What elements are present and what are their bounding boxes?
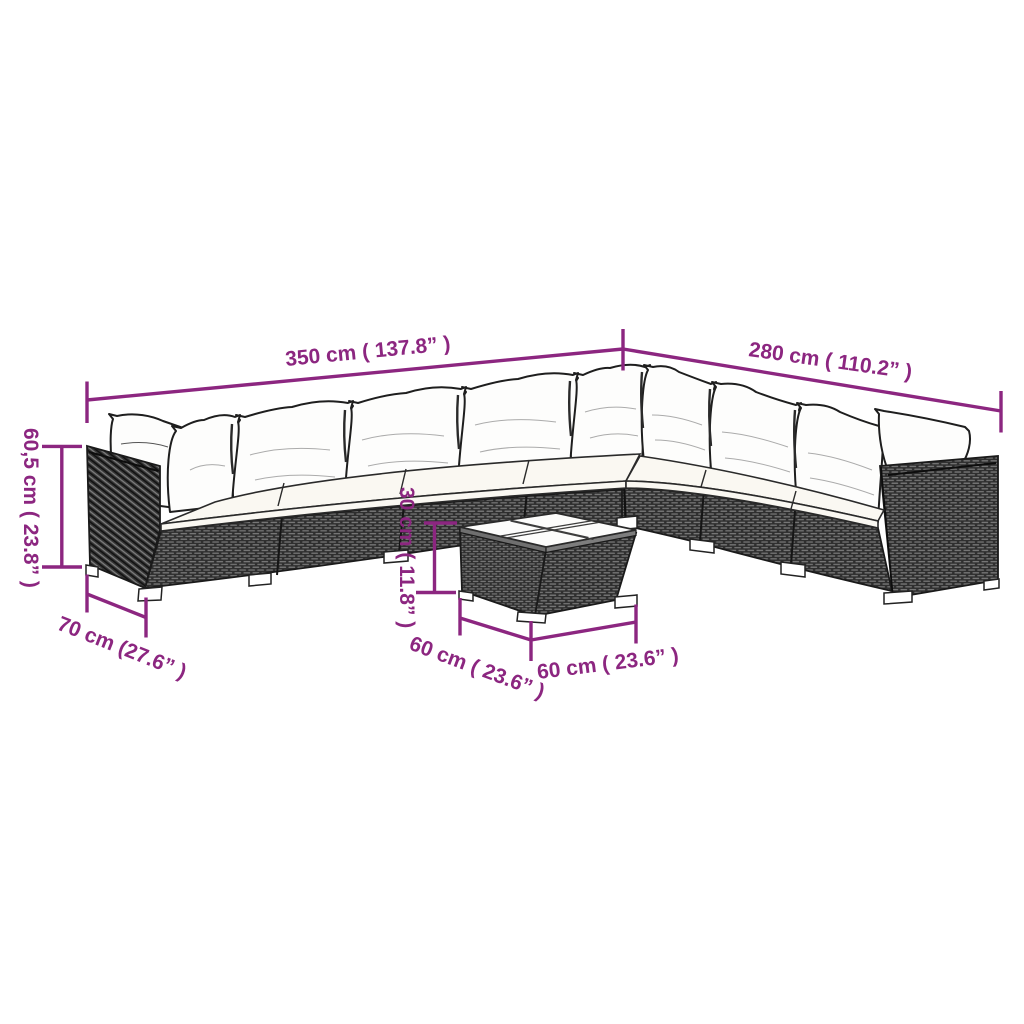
svg-text:30 cm ( 11.8” ): 30 cm ( 11.8” ): [395, 487, 418, 628]
svg-text:60,5 cm ( 23.8” ): 60,5 cm ( 23.8” ): [19, 428, 42, 588]
